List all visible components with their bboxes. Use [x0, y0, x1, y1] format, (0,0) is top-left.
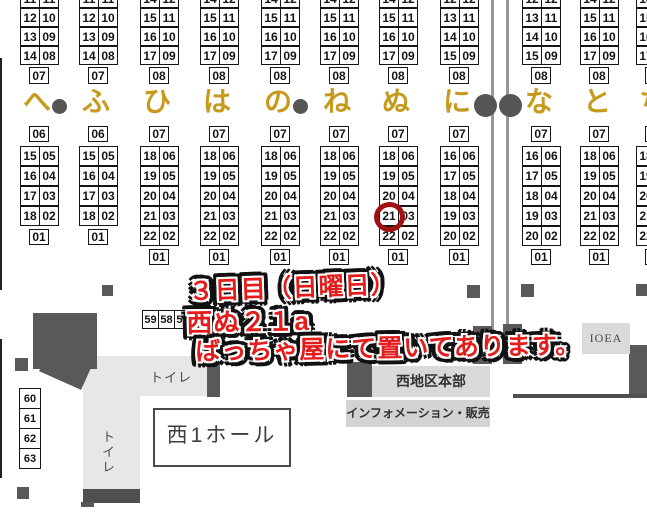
booth-cell: 04 — [398, 186, 418, 206]
booth-cell: 20 — [320, 186, 340, 206]
info-label: インフォメーション・販売 — [346, 406, 489, 420]
booth-cell: 15 — [200, 8, 220, 27]
booth-cell: 05 — [98, 146, 118, 166]
booth-cell: 07 — [270, 126, 290, 142]
booth-cell: 10 — [98, 8, 118, 27]
booth-cell: 04 — [98, 166, 118, 186]
booth-cell: 08 — [449, 67, 469, 84]
right-edge-block — [629, 345, 647, 395]
booth-cell: 18 — [200, 146, 220, 166]
booth-cell: 11 — [79, 0, 99, 8]
booth-cell: 09 — [459, 46, 479, 65]
booth-cell: 14 — [320, 0, 340, 8]
booth-cell: 18 — [522, 186, 542, 206]
booth-cell: 11 — [339, 8, 359, 27]
booth-cell: 19 — [379, 166, 399, 186]
booth-cell: 18 — [320, 146, 340, 166]
booth-cell: 14 — [379, 0, 399, 8]
booth-cell: 17 — [636, 46, 647, 65]
booth-cell: 21 — [580, 206, 600, 226]
booth-cell: 03 — [599, 206, 619, 226]
hall-label-box: 西1ホール — [153, 408, 291, 467]
booth-cell: 18 — [379, 146, 399, 166]
booth-cell: 16 — [140, 27, 160, 46]
booth-cell: 08 — [589, 67, 609, 84]
booth-cell: 11 — [398, 8, 418, 27]
booth-cell: 11 — [98, 0, 118, 8]
booth-cell: 16 — [79, 166, 99, 186]
booth-cell: 19 — [440, 206, 460, 226]
booth-cell: 22 — [200, 226, 220, 246]
booth-cell: 06 — [219, 146, 239, 166]
booth-cell: 02 — [39, 206, 59, 226]
booth-cell: 14 — [20, 46, 40, 65]
row-label: ち — [639, 87, 647, 117]
booth-cell: 20 — [261, 186, 281, 206]
booth-cell: 03 — [39, 186, 59, 206]
booth-cell: 07 — [449, 126, 469, 142]
booth-cell: 18 — [261, 146, 281, 166]
booth-cell: 22 — [580, 226, 600, 246]
booth-cell: 14 — [261, 0, 281, 8]
booth-cell: 16 — [580, 27, 600, 46]
booth-cell: 17 — [140, 46, 160, 65]
booth-cell: 05 — [599, 166, 619, 186]
booth-cell: 17 — [261, 46, 281, 65]
booth-cell: 19 — [320, 166, 340, 186]
booth-cell: 20 — [636, 186, 647, 206]
booth-cell: 18 — [140, 146, 160, 166]
booth-cell: 21 — [320, 206, 340, 226]
hq-dark-block — [347, 362, 372, 397]
booth-cell: 19 — [636, 166, 647, 186]
booth-cell: 19 — [200, 166, 220, 186]
booth-cell: 15 — [320, 8, 340, 27]
hq-label: 西地区本部 — [396, 373, 466, 389]
booth-cell: 12 — [280, 0, 300, 8]
booth-cell: 61 — [19, 408, 41, 429]
booth-cell: 16 — [200, 27, 220, 46]
booth-cell: 13 — [440, 8, 460, 27]
booth-cell: 22 — [140, 226, 160, 246]
booth-cell: 06 — [398, 146, 418, 166]
booth-cell: 02 — [159, 226, 179, 246]
booth-cell: 22 — [261, 226, 281, 246]
booth-cell: 09 — [159, 46, 179, 65]
booth-cell: 06 — [159, 146, 179, 166]
booth-cell: 20 — [580, 186, 600, 206]
booth-cell: 58 — [158, 310, 175, 329]
pillar-dot-small — [52, 99, 67, 114]
row-label: は — [203, 87, 231, 117]
booth-cell: 03 — [98, 186, 118, 206]
booth-cell: 07 — [589, 126, 609, 142]
booth-cell: 16 — [636, 27, 647, 46]
toilet-label-side: トイレ — [98, 430, 117, 475]
booth-cell: 01 — [329, 249, 349, 265]
hall-map: トイレ トイレ 西1ホール 西地区本部 インフォメーション・販売 IOEA 11… — [0, 0, 647, 517]
booth-cell: 15 — [379, 8, 399, 27]
booth-cell: 16 — [379, 27, 399, 46]
toilet-label-top: トイレ — [150, 367, 192, 386]
booth-cell: 16 — [320, 27, 340, 46]
booth-cell: 10 — [398, 27, 418, 46]
booth-cell: 06 — [541, 146, 561, 166]
booth-cell: 62 — [19, 428, 41, 449]
hall-label: 西1ホール — [167, 424, 278, 447]
booth-cell: 15 — [140, 8, 160, 27]
booth-cell: 03 — [219, 206, 239, 226]
booth-cell: 02 — [459, 226, 479, 246]
booth-cell: 11 — [459, 8, 479, 27]
booth-cell: 02 — [280, 226, 300, 246]
booth-cell: 05 — [459, 166, 479, 186]
booth-cell: 04 — [459, 186, 479, 206]
ioea-box: IOEA — [582, 323, 630, 354]
booth-cell: 01 — [531, 249, 551, 265]
booth-cell: 19 — [580, 166, 600, 186]
booth-cell: 01 — [149, 249, 169, 265]
booth-cell: 03 — [280, 206, 300, 226]
booth-cell: 01 — [589, 249, 609, 265]
booth-cell: 01 — [270, 249, 290, 265]
booth-cell: 08 — [209, 67, 229, 84]
booth-cell: 12 — [219, 0, 239, 8]
booth-cell: 05 — [339, 166, 359, 186]
pillar-square — [102, 285, 113, 296]
booth-cell: 03 — [541, 206, 561, 226]
ioea-label: IOEA — [590, 331, 623, 345]
booth-cell: 02 — [219, 226, 239, 246]
row-label: な — [525, 87, 553, 117]
booth-cell: 15 — [580, 8, 600, 27]
booth-cell: 09 — [398, 46, 418, 65]
booth-cell: 11 — [219, 8, 239, 27]
booth-cell: 06 — [599, 146, 619, 166]
booth-cell: 12 — [541, 0, 561, 8]
booth-cell: 06 — [280, 146, 300, 166]
booth-cell: 11 — [39, 0, 59, 8]
booth-cell: 04 — [339, 186, 359, 206]
booth-cell: 10 — [541, 27, 561, 46]
booth-cell: 05 — [159, 166, 179, 186]
annotation-line-3: ばっちゃ屋にて置いてあります。 — [195, 325, 582, 368]
booth-cell: 18 — [636, 146, 647, 166]
booth-cell: 04 — [280, 186, 300, 206]
booth-cell: 22 — [320, 226, 340, 246]
booth-cell: 16 — [20, 166, 40, 186]
row-label: の — [264, 87, 292, 117]
booth-cell: 07 — [149, 126, 169, 142]
booth-cell: 13 — [79, 27, 99, 46]
booth-cell: 07 — [388, 126, 408, 142]
booth-cell: 09 — [219, 46, 239, 65]
booth-cell: 13 — [522, 8, 542, 27]
booth-cell: 05 — [280, 166, 300, 186]
booth-cell: 16 — [261, 27, 281, 46]
booth-cell: 12 — [159, 0, 179, 8]
booth-cell: 17 — [79, 186, 99, 206]
booth-cell: 01 — [449, 249, 469, 265]
booth-cell: 04 — [599, 186, 619, 206]
booth-cell: 12 — [459, 0, 479, 8]
booth-cell: 09 — [39, 27, 59, 46]
booth-cell: 12 — [440, 0, 460, 8]
booth-cell: 14 — [200, 0, 220, 8]
row-label: へ — [23, 87, 51, 117]
row-label: と — [583, 87, 611, 117]
booth-cell: 21 — [261, 206, 281, 226]
booth-cell: 04 — [39, 166, 59, 186]
booth-cell: 07 — [209, 126, 229, 142]
wall-line-center-2 — [506, 0, 509, 330]
booth-cell: 12 — [79, 8, 99, 27]
pillar-square — [15, 358, 28, 371]
booth-cell: 15 — [20, 146, 40, 166]
pillar-square — [467, 285, 480, 298]
booth-cell: 21 — [636, 206, 647, 226]
booth-cell: 18 — [79, 206, 99, 226]
wall-line-left-upper — [0, 58, 2, 290]
booth-cell: 08 — [329, 67, 349, 84]
booth-cell: 07 — [88, 67, 108, 84]
booth-cell: 15 — [440, 46, 460, 65]
row-label: に — [443, 87, 471, 117]
booth-cell: 01 — [88, 229, 108, 245]
booth-cell: 07 — [329, 126, 349, 142]
booth-cell: 10 — [459, 27, 479, 46]
booth-cell: 18 — [580, 146, 600, 166]
hq-box: 西地区本部 — [372, 366, 490, 397]
booth-cell: 11 — [280, 8, 300, 27]
booth-cell: 05 — [219, 166, 239, 186]
booth-cell: 02 — [398, 226, 418, 246]
booth-cell: 07 — [531, 126, 551, 142]
booth-cell: 05 — [39, 146, 59, 166]
booth-cell: 17 — [580, 46, 600, 65]
booth-cell: 19 — [140, 166, 160, 186]
booth-cell: 15 — [636, 8, 647, 27]
booth-cell: 19 — [261, 166, 281, 186]
booth-cell: 20 — [140, 186, 160, 206]
booth-cell: 02 — [599, 226, 619, 246]
booth-cell: 02 — [339, 226, 359, 246]
booth-cell: 11 — [159, 8, 179, 27]
booth-cell: 08 — [149, 67, 169, 84]
booth-cell: 20 — [200, 186, 220, 206]
booth-cell: 16 — [522, 146, 542, 166]
booth-cell: 17 — [20, 186, 40, 206]
row-label: ひ — [143, 87, 171, 117]
booth-cell: 12 — [599, 0, 619, 8]
booth-cell: 22 — [636, 226, 647, 246]
booth-cell: 10 — [280, 27, 300, 46]
booth-cell: 14 — [440, 27, 460, 46]
booth-cell: 08 — [388, 67, 408, 84]
pillar-square — [636, 284, 647, 296]
booth-cell: 19 — [522, 206, 542, 226]
booth-cell: 06 — [88, 126, 108, 142]
booth-cell: 17 — [522, 166, 542, 186]
booth-cell: 20 — [522, 226, 542, 246]
booth-cell: 03 — [159, 206, 179, 226]
booth-cell: 08 — [98, 46, 118, 65]
booth-cell: 15 — [79, 146, 99, 166]
booth-cell: 18 — [440, 186, 460, 206]
booth-cell: 21 — [200, 206, 220, 226]
wall-line-center-1 — [491, 0, 494, 330]
wall-line-left-lower — [0, 339, 2, 478]
booth-cell: 18 — [20, 206, 40, 226]
booth-cell: 02 — [98, 206, 118, 226]
booth-cell: 17 — [320, 46, 340, 65]
booth-cell: 12 — [339, 0, 359, 8]
booth-cell: 05 — [398, 166, 418, 186]
booth-cell: 14 — [636, 0, 647, 8]
booth-cell: 16 — [440, 146, 460, 166]
booth-cell: 08 — [39, 46, 59, 65]
booth-cell: 02 — [541, 226, 561, 246]
booth-cell: 59 — [142, 310, 159, 329]
corridor-bottom-bar — [83, 489, 140, 503]
row-label: ぬ — [382, 87, 410, 117]
booth-cell: 15 — [522, 46, 542, 65]
row-label: ね — [323, 87, 351, 117]
pillar-dot-large — [499, 94, 522, 117]
booth-cell: 14 — [522, 27, 542, 46]
pillar-dot-large — [474, 94, 497, 117]
booth-cell: 01 — [209, 249, 229, 265]
booth-cell: 04 — [541, 186, 561, 206]
booth-cell: 09 — [599, 46, 619, 65]
booth-cell: 08 — [531, 67, 551, 84]
booth-cell: 06 — [29, 126, 49, 142]
booth-cell: 01 — [388, 249, 408, 265]
booth-cell: 11 — [599, 8, 619, 27]
booth-cell: 10 — [219, 27, 239, 46]
booth-cell: 08 — [270, 67, 290, 84]
booth-cell: 20 — [440, 226, 460, 246]
booth-cell: 09 — [541, 46, 561, 65]
booth-cell: 11 — [20, 0, 40, 8]
pillar-square — [521, 284, 534, 297]
booth-cell: 12 — [522, 0, 542, 8]
booth-cell: 10 — [159, 27, 179, 46]
booth-cell: 17 — [200, 46, 220, 65]
booth-cell: 15 — [261, 8, 281, 27]
booth-cell: 11 — [541, 8, 561, 27]
booth-cell: 05 — [541, 166, 561, 186]
booth-cell: 07 — [29, 67, 49, 84]
booth-cell: 17 — [379, 46, 399, 65]
booth-cell: 04 — [219, 186, 239, 206]
booth-cell: 21 — [140, 206, 160, 226]
booth-cell: 13 — [20, 27, 40, 46]
booth-cell: 09 — [280, 46, 300, 65]
booth-cell: 06 — [339, 146, 359, 166]
booth-cell: 03 — [459, 206, 479, 226]
booth-cell: 10 — [39, 8, 59, 27]
booth-cell: 17 — [440, 166, 460, 186]
booth-cell: 03 — [339, 206, 359, 226]
booth-cell: 04 — [159, 186, 179, 206]
booth-cell: 09 — [339, 46, 359, 65]
booth-cell: 12 — [398, 0, 418, 8]
booth-cell: 09 — [98, 27, 118, 46]
row-label: ふ — [82, 87, 110, 117]
booth-cell: 14 — [580, 0, 600, 8]
booth-cell: 60 — [19, 388, 41, 409]
booth-cell: 12 — [20, 8, 40, 27]
booth-cell: 14 — [79, 46, 99, 65]
booth-cell: 06 — [459, 146, 479, 166]
boundary-line — [513, 394, 647, 398]
info-box: インフォメーション・販売 — [346, 400, 490, 427]
booth-cell: 10 — [599, 27, 619, 46]
booth-cell: 63 — [19, 448, 41, 469]
booth-cell: 10 — [339, 27, 359, 46]
corridor-bottom-dash — [81, 502, 94, 507]
booth-cell: 14 — [140, 0, 160, 8]
pillar-dot-small — [293, 99, 308, 114]
pillar-square — [17, 487, 29, 499]
booth-cell: 01 — [29, 229, 49, 245]
